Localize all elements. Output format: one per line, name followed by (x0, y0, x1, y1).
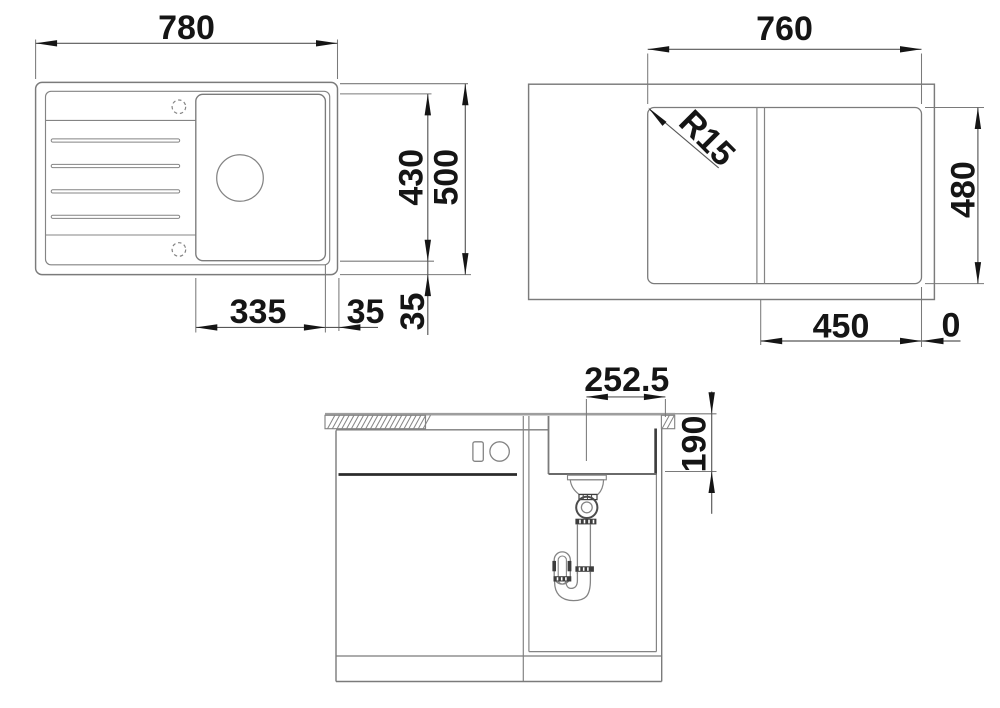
svg-text:780: 780 (158, 9, 215, 47)
svg-text:35: 35 (347, 293, 385, 331)
svg-text:450: 450 (813, 308, 870, 346)
svg-text:35: 35 (394, 293, 432, 331)
svg-text:0: 0 (942, 307, 961, 345)
svg-text:480: 480 (945, 161, 983, 218)
svg-text:335: 335 (230, 293, 287, 331)
svg-text:430: 430 (392, 149, 430, 206)
svg-text:760: 760 (756, 10, 813, 48)
svg-text:252.5: 252.5 (584, 361, 669, 399)
svg-text:500: 500 (428, 149, 466, 206)
svg-text:190: 190 (676, 416, 714, 473)
svg-text:R15: R15 (671, 103, 742, 174)
